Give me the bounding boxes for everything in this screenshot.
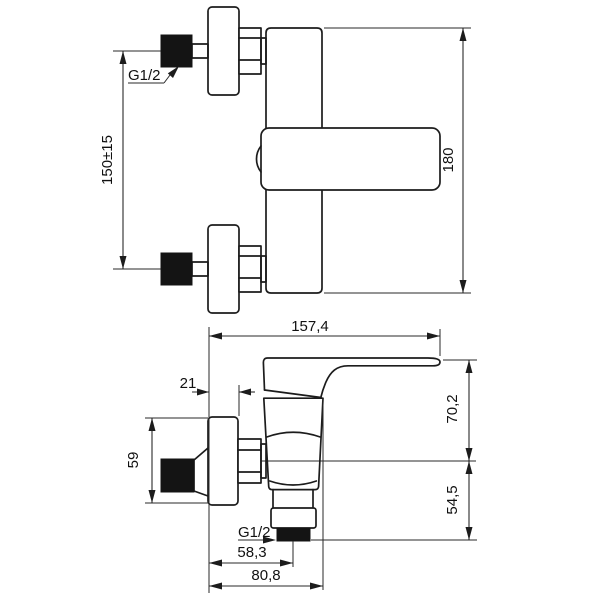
lower-body-bottom-arc [270,481,317,485]
upper-inlet-fitting-bottom [161,253,192,285]
lower-lever-handle [263,358,440,398]
lower-outlet-ring-nut [271,508,316,528]
dim-overall-depth: 157,4 [209,318,440,356]
upper-union-nut-bottom [239,246,261,292]
dim-overall-height-label: 180 [440,147,457,172]
dim-outlet-offset-label: 58,3 [237,544,266,561]
upper-escutcheon-top [208,7,239,95]
upper-inlet-fitting-top [161,35,192,67]
callout-outlet-thread: G1/2 [238,524,276,544]
dim-handle-to-axis: 70,2 [443,360,477,461]
callout-inlet-thread: G1/2 [128,66,179,84]
upper-stem-bottom [192,262,208,276]
lower-outlet-thread [277,528,310,541]
dim-axis-to-outlet-label: 54,5 [444,485,461,514]
lower-offset-cone [194,448,208,496]
dim-axis-to-outlet: 54,5 [311,461,477,540]
dim-escutcheon-height-label: 59 [125,452,142,469]
callout-inlet-thread-label: G1/2 [128,67,161,84]
lower-escutcheon [208,417,238,505]
lower-body [264,398,323,489]
dim-base-depth-label: 80,8 [251,567,280,584]
technical-drawing-page: 150±15 180 G1/2 [0,0,600,600]
drawing-canvas: 150±15 180 G1/2 [0,0,600,600]
upper-stem-top [192,44,208,58]
dim-handle-to-axis-label: 70,2 [444,394,461,423]
dim-escutcheon-depth-label: 21 [180,375,197,392]
upper-union-nut-top [239,28,261,74]
upper-lever-slab [261,128,440,190]
lower-lever-underside [265,390,322,398]
upper-escutcheon-bottom [208,225,239,313]
lower-union-nut [238,439,261,483]
dim-outlet-offset: 58,3 [209,541,293,567]
upper-body-top-section [266,28,322,128]
dim-overall-depth-label: 157,4 [291,318,329,335]
dim-inlet-spacing-label: 150±15 [99,135,116,185]
upper-view: 150±15 180 G1/2 [99,7,471,313]
lower-view: 157,4 21 59 70,2 [125,318,477,593]
lower-body-top-arc [267,432,320,437]
upper-body-bottom-section [266,190,322,293]
lower-inlet-fitting [161,459,194,492]
dim-escutcheon-depth: 21 [180,375,255,416]
